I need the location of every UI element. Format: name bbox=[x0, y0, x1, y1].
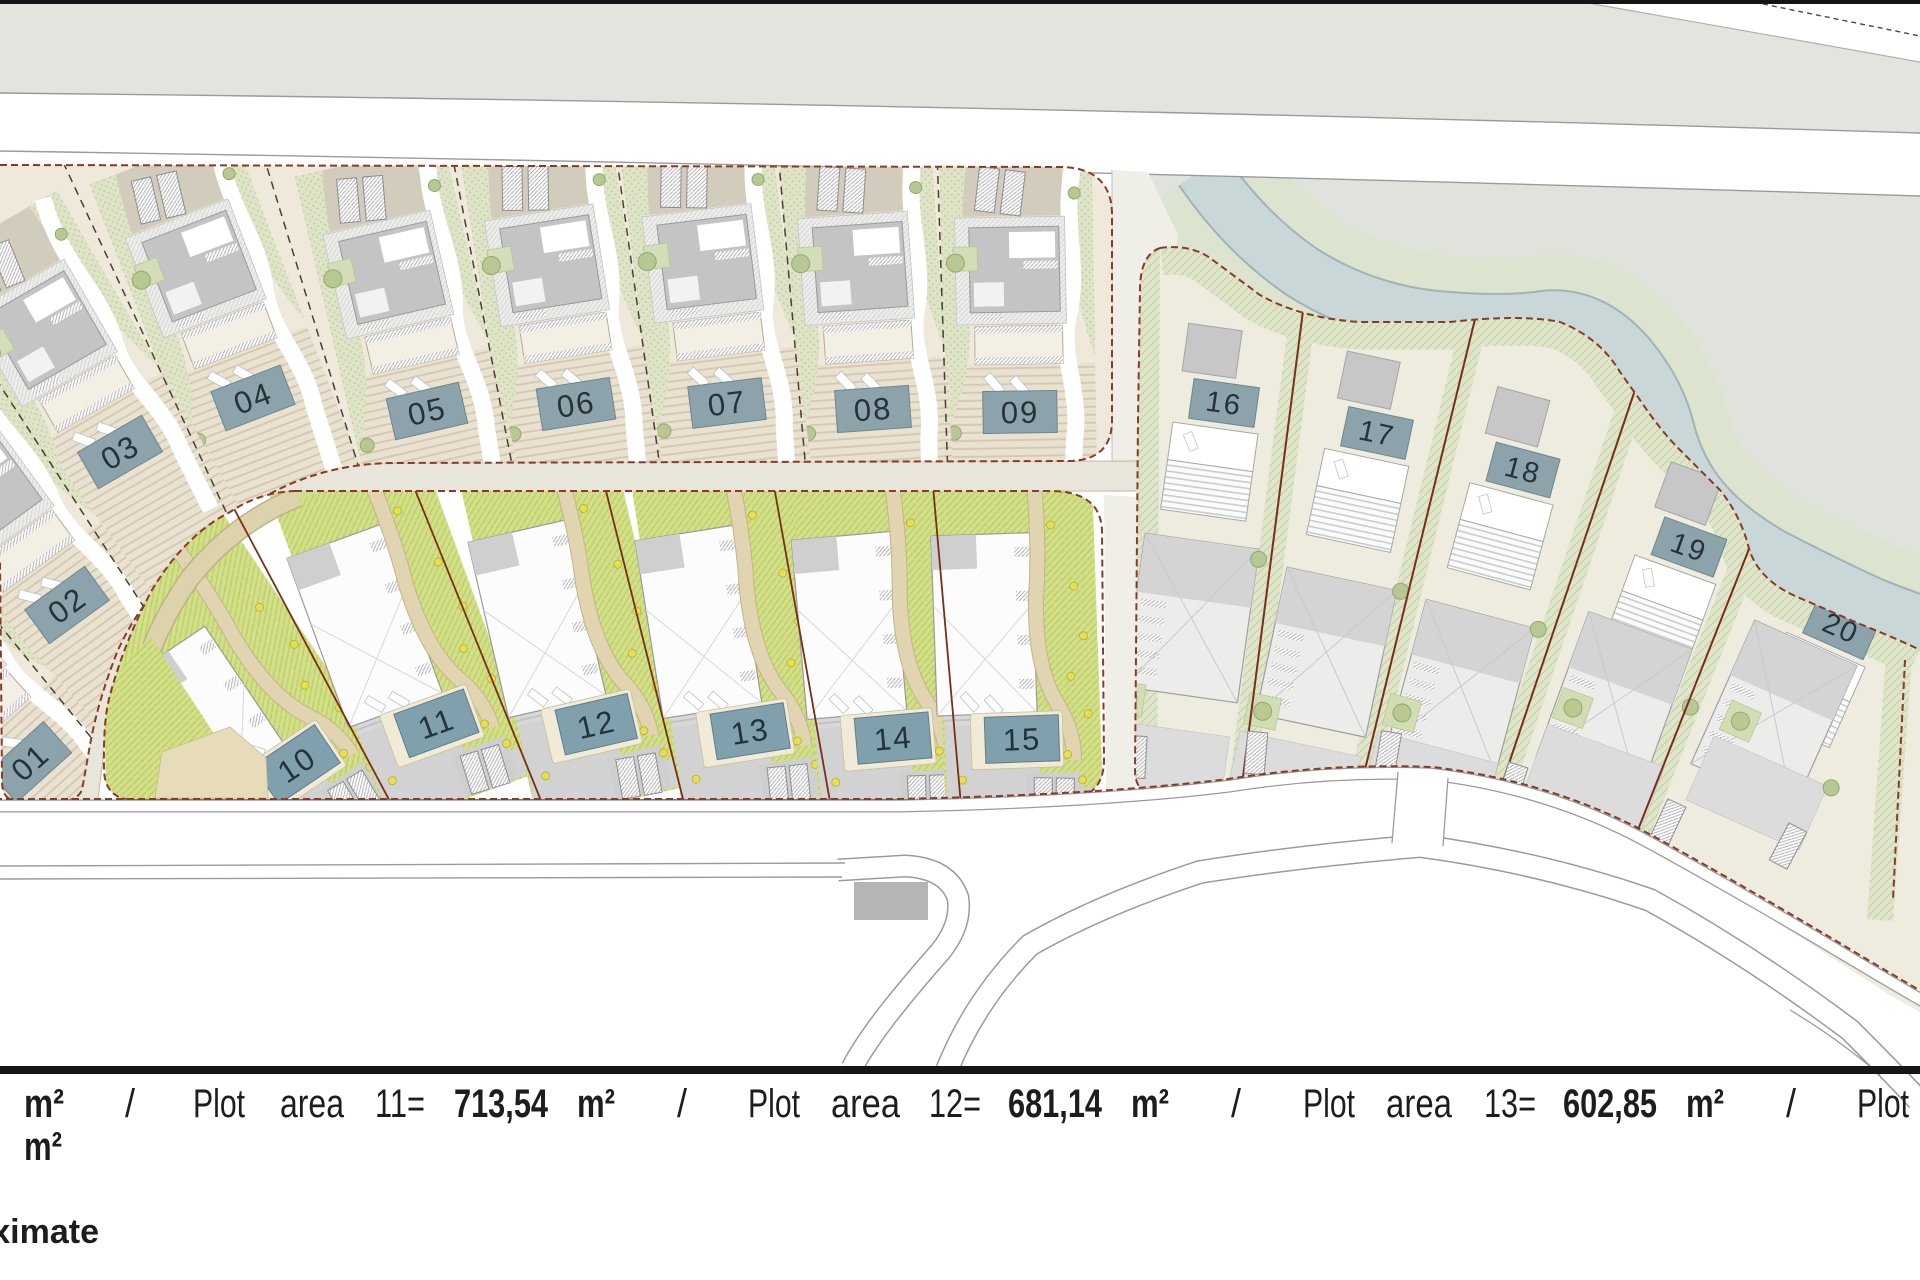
svg-text:area: area bbox=[1386, 1082, 1453, 1126]
svg-text:/: / bbox=[125, 1082, 136, 1126]
svg-text:16: 16 bbox=[1204, 386, 1244, 423]
svg-text:08: 08 bbox=[853, 391, 894, 429]
svg-text:13: 13 bbox=[729, 711, 772, 752]
svg-text:11=: 11= bbox=[375, 1082, 425, 1126]
svg-text:m²: m² bbox=[24, 1082, 64, 1126]
svg-text:/: / bbox=[1231, 1082, 1242, 1126]
svg-text:Plot: Plot bbox=[1303, 1082, 1355, 1126]
svg-text:roximate: roximate bbox=[0, 1213, 99, 1251]
svg-text:Plot: Plot bbox=[193, 1082, 245, 1126]
svg-text:713,54: 713,54 bbox=[454, 1082, 549, 1126]
svg-text:/: / bbox=[677, 1082, 688, 1126]
svg-text:area: area bbox=[831, 1082, 901, 1126]
svg-text:m²: m² bbox=[1686, 1082, 1724, 1126]
svg-text:09: 09 bbox=[1000, 395, 1039, 431]
svg-text:area: area bbox=[280, 1082, 345, 1126]
svg-text:m²: m² bbox=[24, 1125, 62, 1169]
svg-text:602,85: 602,85 bbox=[1563, 1082, 1657, 1126]
svg-text:13=: 13= bbox=[1484, 1082, 1536, 1126]
svg-text:14: 14 bbox=[872, 719, 913, 757]
svg-text:06: 06 bbox=[554, 384, 597, 425]
svg-text:Plot: Plot bbox=[748, 1082, 800, 1126]
svg-text:m²: m² bbox=[1131, 1082, 1169, 1126]
svg-text:15: 15 bbox=[1002, 721, 1042, 757]
svg-text:07: 07 bbox=[706, 384, 748, 423]
svg-text:12=: 12= bbox=[929, 1082, 981, 1126]
svg-text:/: / bbox=[1786, 1082, 1797, 1126]
svg-text:681,14: 681,14 bbox=[1008, 1082, 1103, 1126]
svg-text:Plot: Plot bbox=[1857, 1082, 1909, 1126]
svg-text:m²: m² bbox=[577, 1082, 615, 1126]
